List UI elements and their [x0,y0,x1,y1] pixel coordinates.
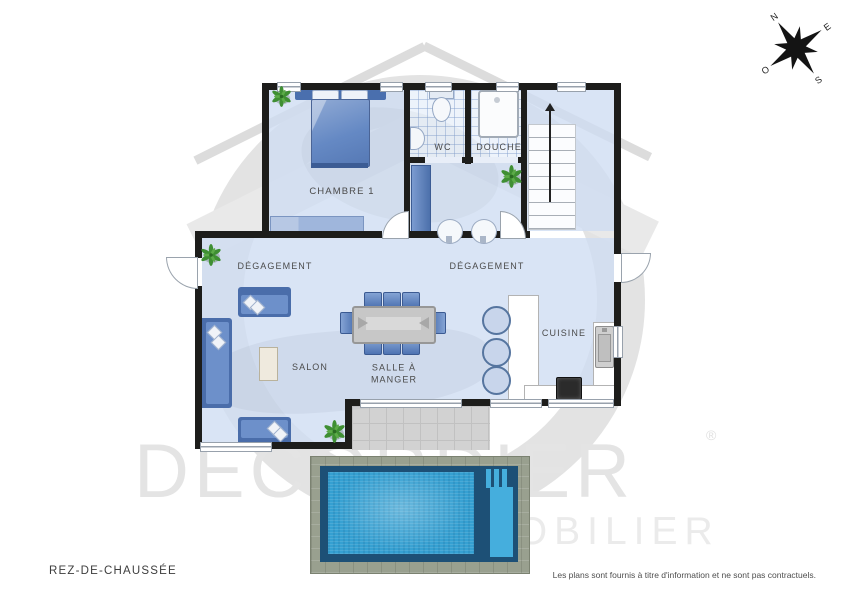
door-opening [614,254,621,282]
pool-step [494,469,499,488]
disclaimer-text: Les plans sont fournis à titre d'informa… [553,570,816,580]
compass-south-label: S [813,74,824,86]
console-table [259,347,278,381]
window [425,82,452,92]
sofa [238,417,291,445]
entrance-door-arc [166,257,198,289]
room-label-wc: WC [434,142,451,154]
room-label-douche: DOUCHE [476,142,522,154]
stairs-direction-arrow [549,110,551,202]
room-label-degagement-right: DÉGAGEMENT [449,261,524,273]
wall-upper-left [262,83,269,235]
bathroom-cabinet [411,165,431,236]
shower-drain [494,97,500,103]
window [496,82,519,92]
plant-icon [499,164,524,189]
room-label-chambre1: CHAMBRE 1 [309,186,374,198]
stairs-arrow-head [545,103,555,111]
plant-icon [322,419,347,444]
plant-icon [199,243,223,267]
sofa [198,318,232,408]
bed-foot [311,163,368,168]
bar-stool [482,338,511,367]
door-opening [425,157,462,163]
window [200,442,272,452]
pool [320,466,518,562]
compass-rose: N E S O [750,2,842,94]
stove [556,377,582,400]
salle-a-manger-line1: SALLE À [372,362,416,372]
compass-north-label: N [769,11,780,23]
terrace-paving [352,406,490,450]
pool-lane [490,487,513,557]
salle-a-manger-line2: MANGER [371,374,417,384]
floor-plan-page: DECORDIER ® IMMOBILIER [0,0,848,600]
dining-table [352,306,436,344]
plant-icon [270,85,293,108]
wall-douche-stairs [521,88,527,236]
room-label-salon: SALON [292,362,328,374]
compass-west-label: O [760,64,772,76]
window [557,82,586,92]
door-opening [473,157,518,163]
compass-east-label: E [822,21,833,33]
pool-water [328,472,474,554]
compass-star-icon [774,26,818,70]
kitchen-sink [595,326,614,368]
room-label-cuisine: CUISINE [542,328,586,340]
bar-stool [482,306,511,335]
wall-wc-douche [465,88,471,164]
pool-step [486,469,491,488]
sliding-door [490,399,542,408]
sliding-door [548,399,614,408]
bed [311,99,370,167]
sliding-door [360,399,462,408]
room-label-salle-a-manger: SALLE À MANGER [371,362,417,385]
staircase [528,124,576,230]
floor-title: REZ-DE-CHAUSSÉE [49,565,177,577]
faucet [446,236,452,243]
registered-trademark-icon: ® [706,427,716,443]
sofa [238,287,291,317]
faucet [480,236,486,243]
bar-stool [482,366,511,395]
pool-step [502,469,507,488]
side-door-arc [621,253,651,283]
room-label-degagement-left: DÉGAGEMENT [237,261,312,273]
window [613,326,623,358]
window [380,82,403,92]
